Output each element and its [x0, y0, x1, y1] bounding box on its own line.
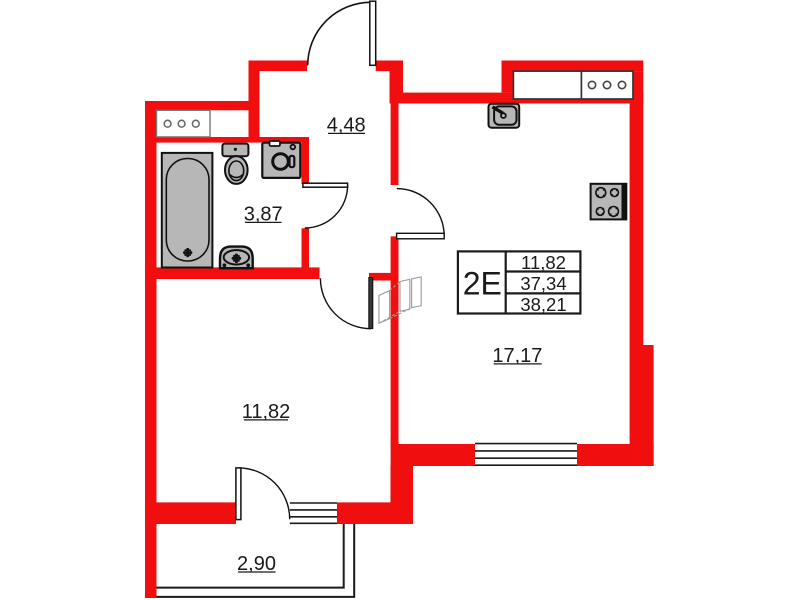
svg-text:37,34: 37,34 — [520, 273, 566, 294]
svg-text:2E: 2E — [463, 265, 502, 301]
svg-text:11,82: 11,82 — [521, 252, 566, 273]
svg-text:38,21: 38,21 — [520, 294, 566, 315]
